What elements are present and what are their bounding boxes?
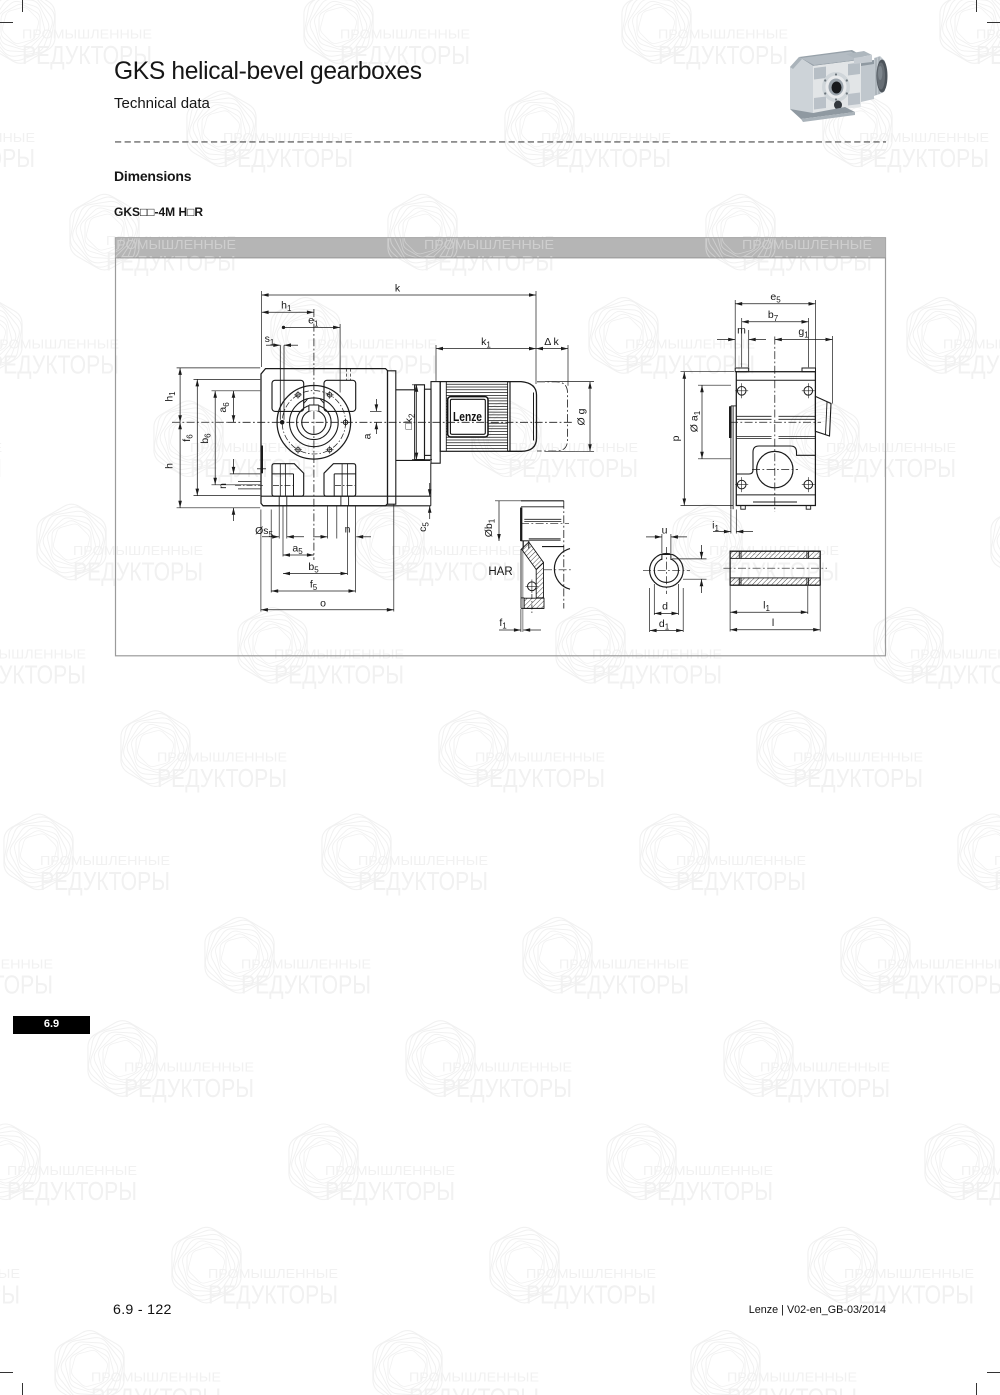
svg-text:h: h <box>164 463 176 469</box>
svg-text:i1: i1 <box>712 520 719 534</box>
svg-text:a6: a6 <box>217 402 231 413</box>
svg-text:a: a <box>362 433 374 439</box>
svg-text:l1: l1 <box>763 600 770 614</box>
svg-text:b6: b6 <box>199 433 213 444</box>
svg-text:p: p <box>670 435 682 441</box>
svg-text:m: m <box>737 324 746 336</box>
svg-text:f6: f6 <box>181 434 195 442</box>
svg-text:n: n <box>217 483 229 489</box>
svg-text:b5: b5 <box>308 561 319 575</box>
svg-text:k: k <box>395 282 401 294</box>
svg-text:o: o <box>320 597 326 609</box>
svg-text:d: d <box>662 601 668 613</box>
svg-text:a5: a5 <box>292 543 303 557</box>
svg-text:g1: g1 <box>798 326 809 340</box>
svg-text:Ø g: Ø g <box>576 408 588 425</box>
svg-text:Δ k: Δ k <box>544 336 559 348</box>
svg-text:u: u <box>662 524 668 536</box>
svg-text:f5: f5 <box>310 579 318 593</box>
svg-text:s1: s1 <box>265 333 275 347</box>
svg-text:Lenze: Lenze <box>453 409 482 424</box>
svg-text:Øb1: Øb1 <box>483 518 497 537</box>
svg-text:e1: e1 <box>308 315 319 329</box>
svg-text:f1: f1 <box>499 617 507 631</box>
svg-text:b7: b7 <box>768 309 779 323</box>
svg-text:h1: h1 <box>164 391 178 402</box>
svg-text:c5: c5 <box>417 522 431 532</box>
svg-text:Øs5: Øs5 <box>255 525 273 539</box>
svg-text:□k2: □k2 <box>403 413 417 430</box>
svg-text:e5: e5 <box>770 291 781 305</box>
svg-text:d1: d1 <box>659 618 670 632</box>
svg-text:l: l <box>772 617 774 629</box>
svg-text:Ø a1: Ø a1 <box>688 410 702 432</box>
svg-text:h1: h1 <box>281 300 292 314</box>
svg-text:k1: k1 <box>481 336 491 350</box>
svg-text:HAR: HAR <box>488 566 512 578</box>
